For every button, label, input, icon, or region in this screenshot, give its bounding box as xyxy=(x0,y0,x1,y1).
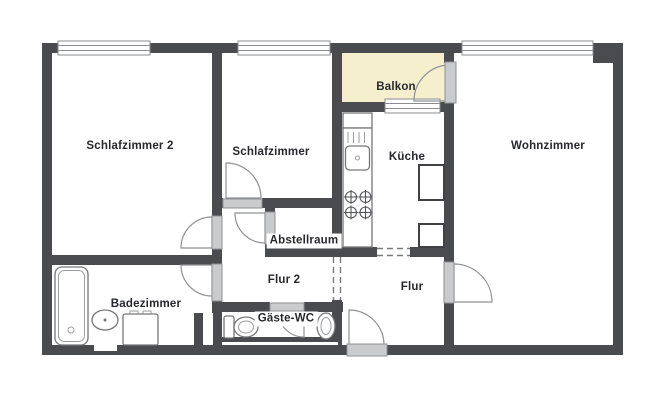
room-label-flur2: Flur 2 xyxy=(268,274,301,286)
entrance-door-threshold xyxy=(347,344,387,356)
wc-door-leaf xyxy=(270,303,304,311)
room-label-gaeste-wc: Gäste-WC xyxy=(255,312,318,327)
wall-bedroom-bottom xyxy=(262,198,342,208)
window-bedroom xyxy=(238,41,330,55)
window-livingroom xyxy=(462,41,593,55)
window-bedroom2 xyxy=(58,41,150,55)
storage-door-arc xyxy=(235,213,265,243)
entrance-door-arc xyxy=(349,310,384,345)
kitchen-counter xyxy=(343,113,372,247)
bathroom-sink-icon xyxy=(92,310,118,330)
wall-kitchen-living xyxy=(444,102,454,263)
bedroom2-door-arc xyxy=(181,217,212,248)
livingroom-door-arc xyxy=(454,264,492,302)
wall-shaft-left xyxy=(194,313,203,345)
wall-flur-living-bottom xyxy=(444,302,454,345)
wall-outer-right xyxy=(613,43,623,355)
washing-machine-icon xyxy=(123,311,158,345)
shaft-niche xyxy=(203,313,213,345)
room-label-kueche: Küche xyxy=(389,151,425,163)
wall-wc-top xyxy=(213,302,270,312)
balcony-floor xyxy=(342,49,445,102)
room-label-abstellraum: Abstellraum xyxy=(267,234,342,249)
wall-bedrooms-divider xyxy=(212,53,222,198)
balcony-door-leaf xyxy=(445,62,456,103)
wc-sink-icon xyxy=(317,313,335,339)
room-label-wohnzimmer: Wohnzimmer xyxy=(511,140,585,152)
bathroom-door-arc xyxy=(181,265,212,296)
wall-wc-bottom-edge xyxy=(222,337,338,342)
wall-bath-top xyxy=(42,255,212,265)
wall-kitchen-bottom xyxy=(410,247,454,257)
livingroom-door-leaf xyxy=(444,262,454,303)
wall-flur2-left xyxy=(212,248,222,265)
bathroom-door-leaf xyxy=(212,264,222,301)
room-label-balkon: Balkon xyxy=(376,81,416,93)
bottom-wall-niche xyxy=(94,345,117,351)
room-label-badezimmer: Badezimmer xyxy=(111,298,181,310)
kitchen-appliance-icon xyxy=(419,224,444,247)
wall-balcony-living-top xyxy=(444,43,454,63)
room-label-schlafzimmer: Schlafzimmer xyxy=(232,146,309,158)
bedroom-door-arc xyxy=(226,163,261,198)
room-label-schlafzimmer2: Schlafzimmer 2 xyxy=(86,140,173,152)
wall-shaft-right xyxy=(213,313,222,345)
wall-corner-top-right xyxy=(593,43,623,63)
wall-wc-top xyxy=(304,302,343,312)
windows xyxy=(58,41,593,113)
wall-bedroom-kitchen xyxy=(332,43,342,257)
toilet-icon xyxy=(224,316,258,338)
fridge-icon xyxy=(419,165,444,200)
bedroom-door-leaf xyxy=(223,199,262,208)
floor-plan: Schlafzimmer 2 Schlafzimmer Balkon Küche… xyxy=(0,0,668,400)
wall-storage-bottom xyxy=(265,247,377,257)
bedroom2-door-leaf xyxy=(212,216,222,249)
wall-outer-left xyxy=(42,43,52,355)
floor-plan-drawing xyxy=(0,0,668,400)
bathtub-icon xyxy=(55,267,88,345)
room-label-flur: Flur xyxy=(401,281,424,293)
wall-outer-bottom xyxy=(42,345,623,355)
wc-bottom-gap xyxy=(222,342,338,345)
wall-bedroom-bottom xyxy=(212,198,223,208)
